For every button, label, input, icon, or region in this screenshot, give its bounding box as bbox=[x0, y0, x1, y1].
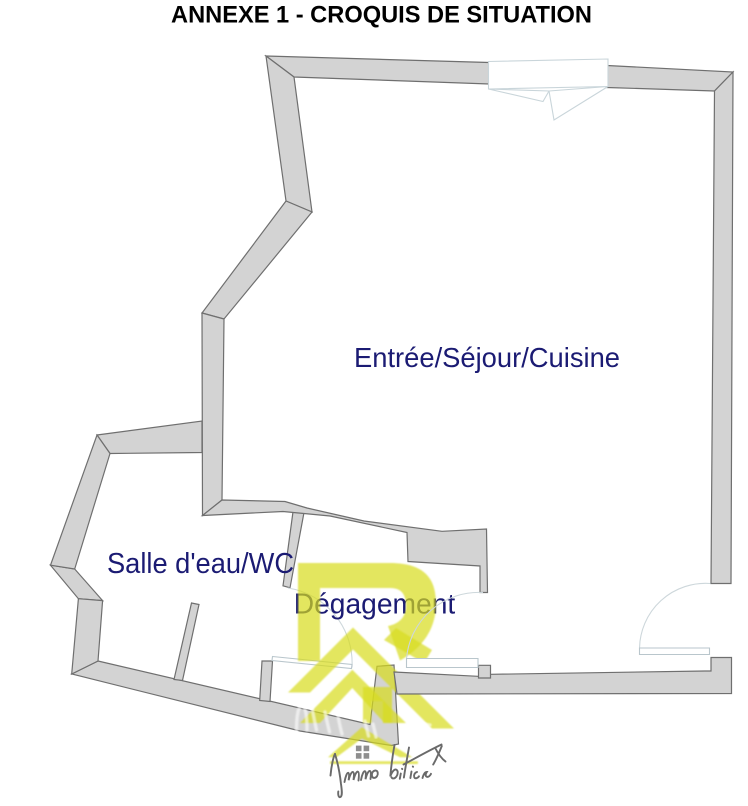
svg-text:ANNEXE 1 - CROQUIS DE SITUATIO: ANNEXE 1 - CROQUIS DE SITUATION bbox=[171, 2, 592, 29]
svg-text:Salle d'eau/WC: Salle d'eau/WC bbox=[107, 548, 294, 580]
svg-text:Entrée/Séjour/Cuisine: Entrée/Séjour/Cuisine bbox=[354, 342, 620, 373]
